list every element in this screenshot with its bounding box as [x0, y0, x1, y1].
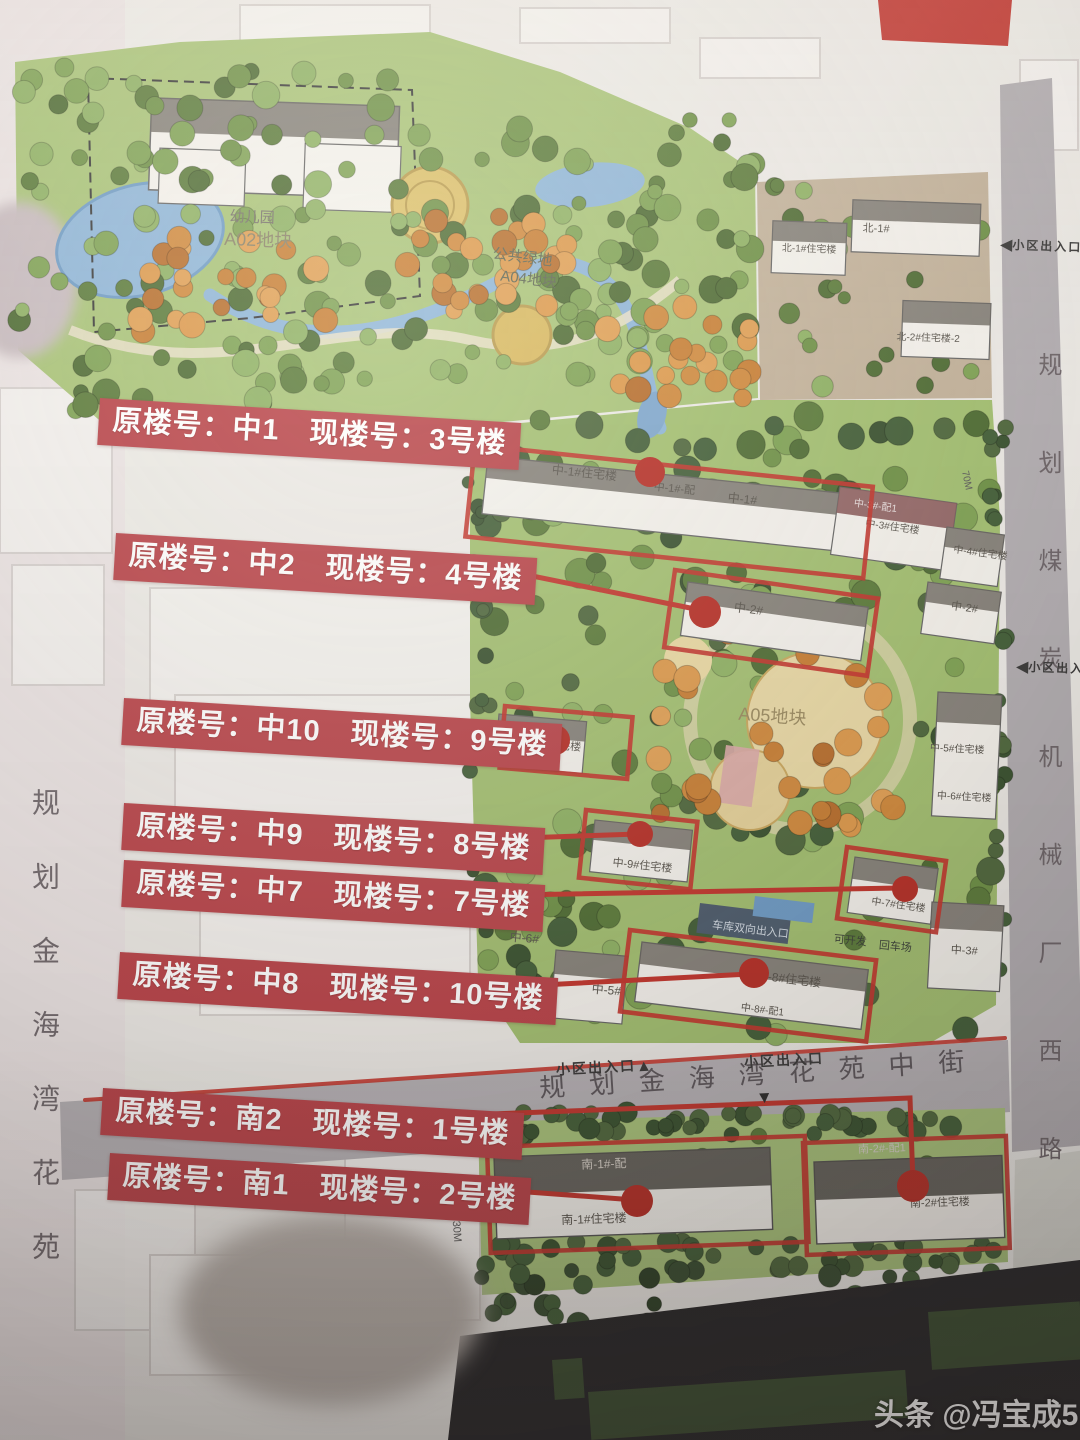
street-name-right: 规划煤炭机械厂西路 [1030, 352, 1065, 1234]
kindergarten-block-label: A02地块 [224, 229, 293, 251]
building-label-z1c: 中-1# [727, 490, 758, 508]
watermark: 头条 @冯宝成5 [874, 1390, 1078, 1434]
board-red-frame [878, 0, 1012, 46]
building-label-s2p: 南-2#-配1 [858, 1141, 906, 1156]
building-label-n1b: 北-1# [862, 222, 890, 236]
watermark-brand: 头条 [874, 1399, 934, 1432]
arrow-left-icon: ◀ [1000, 237, 1013, 254]
entrance-label-south-east: 小区出入口 [744, 1048, 825, 1072]
photo-blur-foreground [180, 1215, 480, 1405]
entrance-label-northeast: ◀小区出入口 [1000, 235, 1080, 258]
building-label-z3r: 中-3# [950, 943, 978, 957]
site-plan-board-photo: 幼儿园 A02地块 公共绿地 A04地块 A05地块 北-1#住宅楼 北-1# … [0, 0, 1080, 1440]
building-label-s1p: 南-1#-配 [581, 1155, 627, 1172]
building-slab-n2 [901, 300, 991, 359]
arrow-up-icon: ▲ [636, 1058, 653, 1076]
entrance-label-east: ◀小区出入口 [1016, 657, 1080, 680]
street-name-left: 规划金海湾花苑 [24, 788, 64, 1306]
watermark-handle: @冯宝成5 [942, 1399, 1078, 1432]
arrow-down-icon: ▼ [755, 1088, 773, 1109]
arrow-left-icon: ◀ [1016, 659, 1029, 676]
kindergarten-label: 幼儿园 [229, 208, 275, 227]
building-label-s1: 南-1#住宅楼 [561, 1210, 627, 1227]
